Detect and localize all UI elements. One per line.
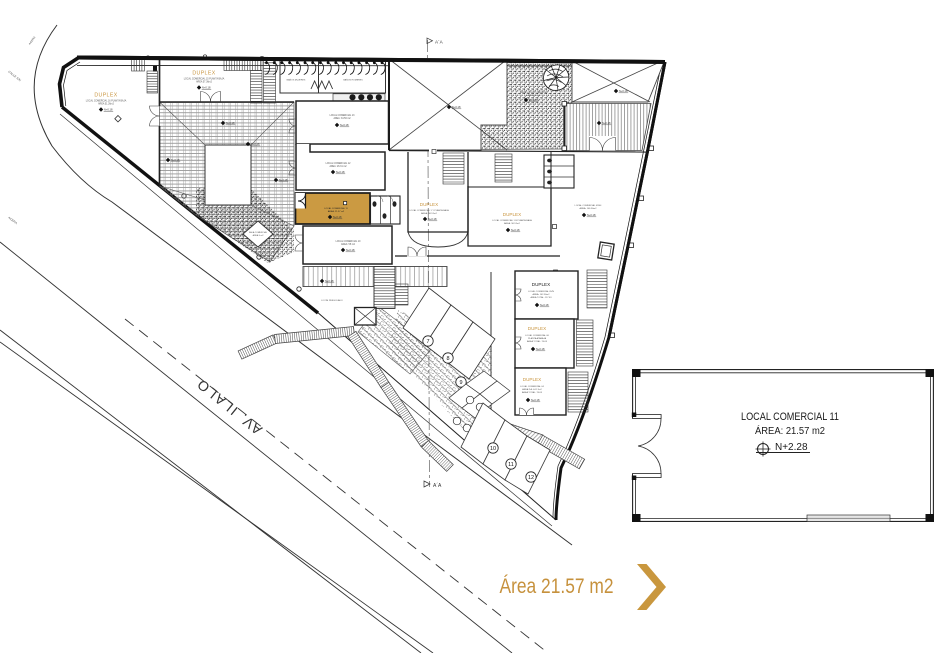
svg-text:AREA: 34.56 m2: AREA: 34.56 m2: [333, 117, 351, 120]
svg-text:AREA: 102.36m2: AREA: 102.36m2: [533, 293, 551, 296]
svg-text:N+0.18: N+0.18: [536, 347, 545, 351]
svg-text:LOCAL COMERCIAL 09/04: LOCAL COMERCIAL 09/04: [575, 204, 602, 207]
svg-text:N+0.18: N+0.18: [104, 107, 113, 111]
svg-text:LOCAL COMERCIAL 15 PLANTA BAJA: LOCAL COMERCIAL 15 PLANTA BAJA: [184, 78, 225, 81]
svg-text:N+0.18: N+0.18: [346, 248, 355, 252]
svg-text:SALA COMERCIAL: SALA COMERCIAL: [249, 231, 268, 234]
svg-text:DUPLEX: DUPLEX: [420, 202, 438, 207]
svg-text:AREA 9 m2: AREA 9 m2: [253, 234, 265, 237]
svg-text:BAÑOS MUJERES: BAÑOS MUJERES: [287, 79, 306, 82]
svg-text:AREA 51.26m2: AREA 51.26m2: [98, 103, 114, 106]
svg-text:AREA: 21.57 m2: AREA: 21.57 m2: [328, 210, 345, 213]
svg-text:8: 8: [446, 356, 449, 362]
svg-text:N+2.28: N+2.28: [775, 442, 808, 453]
svg-text:N+0.18: N+0.18: [529, 98, 538, 102]
svg-text:LOCAL COMERCIAL 11: LOCAL COMERCIAL 11: [324, 207, 348, 210]
svg-text:AREA: 55 m2: AREA: 55 m2: [341, 243, 356, 246]
svg-text:DUPLEX: DUPLEX: [523, 377, 541, 382]
svg-text:LOCAL COMERCIAL 16 PLANTA BAJA: LOCAL COMERCIAL 16 PLANTA BAJA: [86, 100, 127, 103]
svg-text:N+0.18: N+0.18: [279, 178, 288, 182]
svg-text:12: 12: [528, 475, 534, 481]
svg-text:AREA: 58.57m2: AREA: 58.57m2: [504, 222, 520, 225]
svg-text:DUPLEX: DUPLEX: [192, 71, 215, 77]
svg-text:DUPLEX: DUPLEX: [503, 212, 521, 217]
svg-text:Área 21.57 m2: Área 21.57 m2: [500, 573, 614, 598]
svg-text:BAÑOS HOMBRES: BAÑOS HOMBRES: [343, 79, 363, 82]
svg-text:N+0.18: N+0.18: [251, 142, 260, 146]
svg-text:LOCAL COMERCIAL 10: LOCAL COMERCIAL 10: [336, 240, 362, 243]
svg-text:N+0.18: N+0.18: [511, 228, 520, 232]
svg-text:L/COM PERGOLADO: L/COM PERGOLADO: [321, 299, 343, 302]
svg-text:LOCAL COMERCIAL 04: LOCAL COMERCIAL 04: [520, 385, 544, 388]
svg-text:LOCAL COMERCIAL 1 B PLANTA BAJ: LOCAL COMERCIAL 1 B PLANTA BAJA: [492, 219, 532, 222]
svg-text:AREA TOTAL: 117.63: AREA TOTAL: 117.63: [531, 296, 553, 299]
svg-text:7: 7: [426, 339, 429, 345]
svg-text:N+0.18: N+0.18: [336, 170, 345, 174]
svg-text:11: 11: [508, 462, 514, 468]
svg-text:AREA: 85 m2: AREA: 85 m2: [527, 94, 541, 97]
svg-text:LOCAL COMERCIAL 11: LOCAL COMERCIAL 11: [741, 411, 839, 423]
svg-text:PLANTA ATABAJA: PLANTA ATABAJA: [528, 337, 547, 340]
svg-text:ÁREA: 21.57 m2: ÁREA: 21.57 m2: [755, 424, 825, 437]
svg-text:N+0.18: N+0.18: [171, 158, 180, 162]
svg-text:N+0.18: N+0.18: [340, 123, 349, 127]
svg-text:LOCAL COMERCIAL 06: LOCAL COMERCIAL 06: [525, 334, 549, 337]
svg-text:DUPLEX: DUPLEX: [94, 93, 117, 99]
svg-text:LOCAL COMERCIAL 12: LOCAL COMERCIAL 12: [326, 162, 352, 165]
svg-text:AREA P.A: 44.17m2: AREA P.A: 44.17m2: [522, 388, 542, 391]
svg-text:AREA: 106.56m2: AREA: 106.56m2: [580, 207, 598, 210]
svg-text:AREA: 26.31 m2: AREA: 26.31 m2: [329, 165, 347, 168]
svg-text:AREA: 58.57m2: AREA: 58.57m2: [421, 212, 437, 215]
svg-text:N+0.18: N+0.18: [602, 121, 611, 125]
svg-text:AREA LOCAL COMERCIAL: AREA LOCAL COMERCIAL: [520, 91, 548, 94]
svg-text:N+0.18: N+0.18: [540, 303, 549, 307]
svg-text:DUPLEX: DUPLEX: [532, 282, 550, 287]
svg-text:N+0.18: N+0.18: [587, 213, 596, 217]
svg-text:9: 9: [459, 380, 462, 386]
svg-text:N+0.18: N+0.18: [531, 398, 540, 402]
svg-text:A´A: A´A: [435, 40, 444, 45]
svg-text:N+0.18: N+0.18: [452, 105, 461, 109]
svg-text:N+0.18: N+0.18: [226, 121, 235, 125]
svg-text:AREA TOTAL: 76.63: AREA TOTAL: 76.63: [527, 340, 548, 343]
svg-text:LOCAL COMERCIAL 13: LOCAL COMERCIAL 13: [330, 114, 356, 117]
svg-text:A´A: A´A: [433, 483, 442, 489]
svg-text:10: 10: [490, 446, 496, 452]
svg-text:N+0.18: N+0.18: [428, 217, 437, 221]
svg-text:AREA 57.36m2: AREA 57.36m2: [196, 81, 212, 84]
svg-text:N+0.18: N+0.18: [333, 215, 342, 219]
svg-text:N+0.18: N+0.18: [325, 279, 334, 283]
svg-text:LOCAL COMERCIAL 1 Y PLANTA BAJ: LOCAL COMERCIAL 1 Y PLANTA BAJA: [409, 209, 449, 212]
svg-text:N+0.18: N+0.18: [202, 85, 211, 89]
svg-text:LOCAL COMERCIAL 05/N: LOCAL COMERCIAL 05/N: [528, 290, 554, 293]
svg-text:AREA TOTAL: 76.63: AREA TOTAL: 76.63: [522, 391, 543, 394]
svg-text:N+0.18: N+0.18: [619, 89, 628, 93]
svg-text:DUPLEX: DUPLEX: [528, 326, 546, 331]
